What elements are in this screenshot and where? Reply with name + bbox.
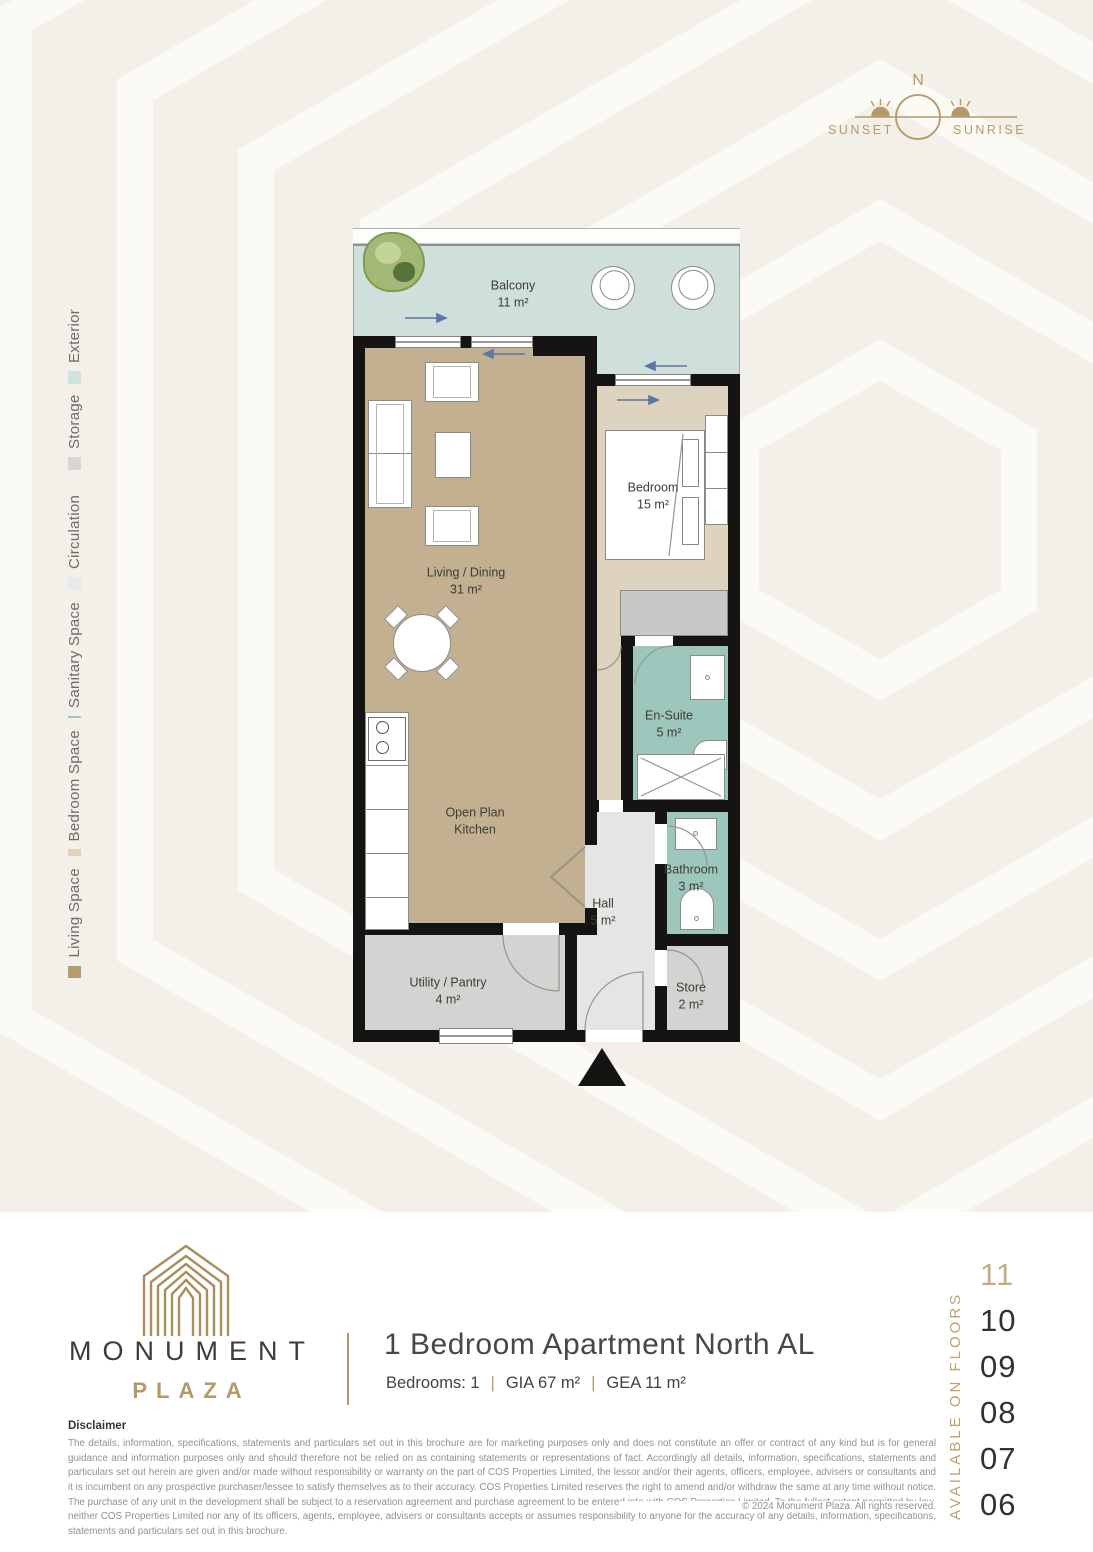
- legend-label: Storage: [66, 382, 83, 449]
- disclaimer-heading: Disclaimer: [68, 1420, 126, 1432]
- floor-number: 07: [980, 1436, 1016, 1482]
- compass: N SUNSET SUNRISE: [815, 55, 1030, 150]
- legend-item-sanitary: Sanitary Space: [62, 602, 86, 718]
- legend-label: Exterior: [66, 288, 83, 363]
- available-on-floors-heading: AVAILABLE ON FLOORS: [947, 1262, 964, 1550]
- floor-availability-list: 11 10 09 08 07 06: [980, 1252, 1016, 1528]
- spec-gia: GIA 67 m²: [506, 1374, 580, 1392]
- room-label-bathroom: Bathroom3 m²: [664, 846, 718, 895]
- top-section: N SUNSET SUNRISE Exterior Storage Circul…: [0, 0, 1093, 1212]
- floor-number: 10: [980, 1298, 1016, 1344]
- unit-specs: Bedrooms: 1|GIA 67 m²|GEA 11 m²: [386, 1374, 686, 1393]
- sunrise-label: SUNRISE: [953, 123, 1026, 137]
- legend-item-living-space: Living Space: [62, 868, 86, 978]
- spec-separator: |: [491, 1374, 495, 1392]
- brochure-page: N SUNSET SUNRISE Exterior Storage Circul…: [0, 0, 1093, 1552]
- spec-bedrooms: Bedrooms: 1: [386, 1374, 480, 1392]
- legend-item-storage: Storage: [62, 382, 86, 470]
- floor-number: 06: [980, 1482, 1016, 1528]
- sunrise-sun-icon: [951, 99, 970, 116]
- legend-item-circulation: Circulation: [62, 482, 86, 590]
- floor-plan: Balcony11 m² Living / Dining31 m² Open P…: [353, 228, 740, 1042]
- legend-swatch-circulation: [68, 577, 81, 590]
- floor-number: 08: [980, 1390, 1016, 1436]
- legend-label: Bedroom Space: [66, 730, 83, 841]
- brand-subname: PLAZA: [58, 1378, 316, 1404]
- room-label-hall: Hall5 m²: [591, 880, 616, 929]
- legend-item-exterior: Exterior: [62, 288, 86, 384]
- legend-swatch-storage: [68, 457, 81, 470]
- disclaimer-body: The details, information, specifications…: [68, 1437, 936, 1540]
- room-label-bedroom: Bedroom15 m²: [628, 464, 679, 513]
- legend-swatch-sanitary: [68, 716, 81, 718]
- room-label-living: Living / Dining31 m²: [427, 549, 506, 598]
- plan-annotations: [353, 228, 740, 1042]
- spec-separator: |: [591, 1374, 595, 1392]
- legend-swatch-living-space: [68, 966, 81, 979]
- brand-divider: [347, 1333, 349, 1405]
- room-label-store: Store2 m²: [676, 964, 706, 1013]
- brand-name: MONUMENT: [58, 1336, 316, 1367]
- room-label-kitchen: Open Plan Kitchen: [439, 789, 511, 838]
- sunset-label: SUNSET: [828, 123, 894, 137]
- direction-arrows: [405, 314, 687, 404]
- entrance-arrow-icon: [578, 1048, 626, 1086]
- room-label-ensuite: En-Suite5 m²: [645, 692, 693, 741]
- legend-label: Sanitary Space: [66, 602, 83, 708]
- spec-gea: GEA 11 m²: [606, 1374, 685, 1392]
- floor-number: 11: [980, 1252, 1016, 1298]
- room-label-utility: Utility / Pantry4 m²: [409, 959, 486, 1008]
- floor-number: 09: [980, 1344, 1016, 1390]
- compass-north-label: N: [912, 72, 924, 89]
- copyright: © 2024 Monument Plaza. All rights reserv…: [620, 1501, 936, 1512]
- legend-label: Circulation: [66, 482, 83, 569]
- room-label-balcony: Balcony11 m²: [491, 262, 535, 311]
- legend-label: Living Space: [66, 868, 83, 958]
- sunset-sun-icon: [871, 99, 890, 116]
- legend-item-bedroom-space: Bedroom Space: [62, 730, 86, 856]
- unit-title: 1 Bedroom Apartment North AL: [384, 1328, 815, 1362]
- legend-swatch-bedroom-space: [68, 849, 81, 856]
- monument-plaza-logo-icon: [136, 1242, 236, 1336]
